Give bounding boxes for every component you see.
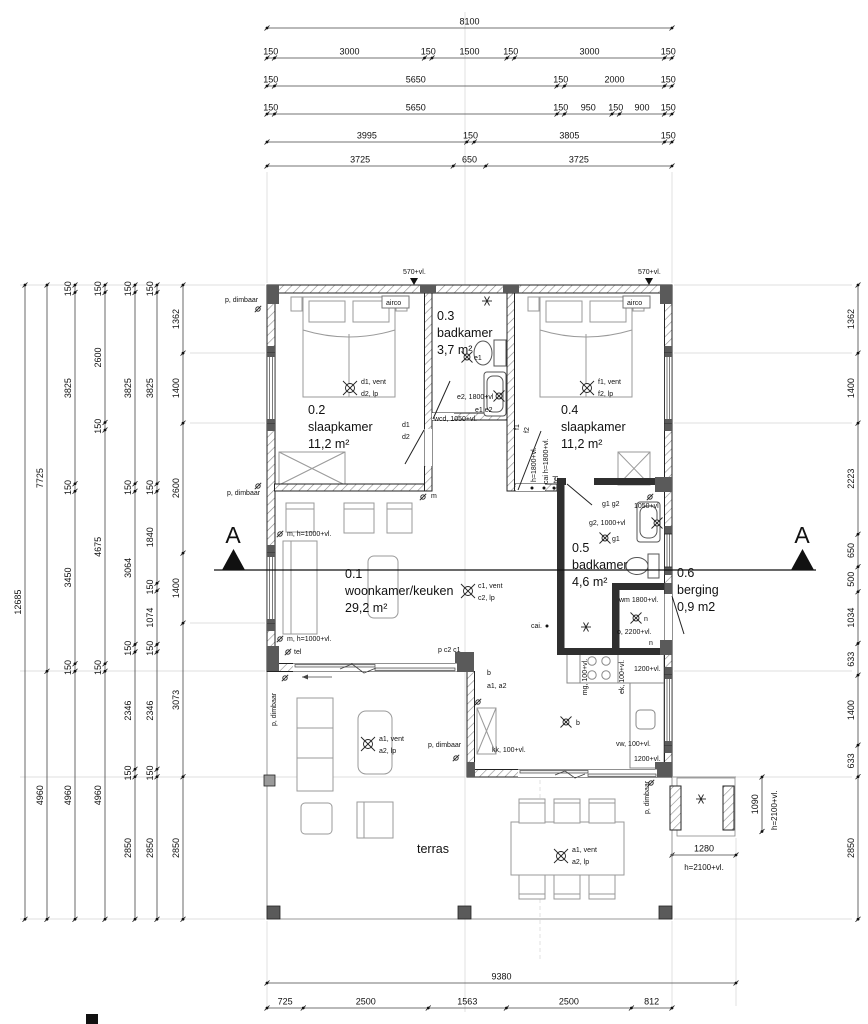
dim-label: 650: [846, 543, 856, 558]
dim-label: 150: [503, 47, 518, 57]
dim-label: 2850: [123, 838, 133, 858]
room-label-0.5: 4,6 m²: [572, 575, 607, 589]
room-label-0.4: 11,2 m²: [561, 437, 602, 451]
annotation-label: 570+vl.: [403, 269, 426, 276]
dot-icon: [543, 487, 546, 490]
dim-label: 2000: [604, 75, 624, 85]
annotation-label: 1200+vl.: [634, 666, 661, 673]
dim-chain-bottom-row-2: 725250015632500812: [265, 997, 675, 1011]
room-label-0.2: slaapkamer: [308, 420, 373, 434]
dim-label: 150: [93, 281, 103, 296]
dim-label: 2850: [846, 838, 856, 858]
dim-label: 4675: [93, 537, 103, 557]
dim-label: 150: [123, 480, 133, 495]
annotation-label: d2, lp: [361, 391, 378, 398]
socket-icon: [285, 649, 291, 655]
dim-chain-top-row-1: 8100: [265, 17, 675, 31]
annotation-label: ek, 100+vl.: [619, 660, 626, 694]
toilet: [626, 554, 659, 578]
annotation-label: g1 g2: [602, 501, 620, 508]
annotation-label: e2, 1800+vl: [457, 394, 494, 401]
annotation-label: m, h=1000+vl.: [287, 636, 331, 643]
dim-label: 150: [93, 660, 103, 675]
annotation-label: wm 1800+vl.: [618, 597, 659, 604]
section-letter: A: [225, 522, 241, 548]
dim-chain-porch-depth: 1090: [750, 775, 765, 835]
annotation-label: e1 e2: [475, 407, 493, 414]
annotation-label: cai h=1800+vl.: [543, 438, 550, 484]
annotation-label: p, dimbaar: [225, 297, 259, 304]
dim-label: 150: [421, 47, 436, 57]
annotation-label: tel: [294, 649, 302, 656]
dim-label: 150: [661, 75, 676, 85]
dim-label: 633: [846, 652, 856, 667]
dim-label: 150: [145, 765, 155, 780]
dim-label: 633: [846, 753, 856, 768]
dim-chain-top-row-4: 1505650150950150900150: [263, 103, 676, 117]
room-label-0.5: badkamer: [572, 558, 628, 572]
dim-label: 900: [634, 103, 649, 113]
dim-label: 3725: [350, 155, 370, 165]
dim-label: 3725: [569, 155, 589, 165]
dim-label: 150: [63, 281, 73, 296]
room-label-0.1: woonkamer/keuken: [344, 584, 453, 598]
annotation-label: airco: [386, 300, 401, 307]
room-label-0.3: 0.3: [437, 309, 454, 323]
floor-plan-drawing: 8100150300015015001503000150150565015020…: [0, 0, 868, 1024]
annotation-label: c1, vent: [478, 583, 503, 590]
dim-chain-left-col-2: 77254960: [35, 283, 50, 922]
side-table: [357, 802, 393, 838]
annotation-label: vw, 100+vl.: [616, 741, 651, 748]
annotation-label: f2: [524, 427, 531, 433]
window: [665, 675, 673, 745]
dim-label: 150: [263, 47, 278, 57]
lamp-icon: [554, 849, 568, 863]
armchair: [344, 503, 374, 533]
socket-icon: [453, 755, 459, 761]
lamp-icon: [461, 584, 475, 598]
sofa: [283, 541, 317, 634]
annotation-label: p, dimbaar: [644, 780, 651, 814]
room-label-0.5: 0.5: [572, 541, 589, 555]
dim-label: 500: [846, 572, 856, 587]
dim-label: 1840: [145, 527, 155, 547]
annotation-label: 1200+vl.: [634, 756, 661, 763]
dot-icon: [553, 487, 556, 490]
dim-label: 650: [462, 155, 477, 165]
annotation-label: a1, vent: [379, 736, 404, 743]
window: [267, 553, 275, 623]
socket-icon: [277, 531, 283, 537]
dim-label: 150: [263, 103, 278, 113]
socket-icon: [255, 306, 261, 312]
annotation-label: tel: [553, 475, 560, 483]
section-arrow: [791, 549, 814, 570]
wardrobe: [279, 452, 345, 485]
dim-label: 1074: [145, 608, 155, 628]
dim-label: 150: [93, 419, 103, 434]
dim-label: 3825: [123, 378, 133, 398]
dot-icon: [546, 625, 549, 628]
annotation-label: h=2100+vl.: [684, 863, 724, 872]
dim-chain-bottom-row-1: 9380: [265, 972, 739, 986]
dim-chain-left-col-1: 12685: [13, 283, 28, 922]
annotation-label: p, dimbaar: [227, 490, 261, 497]
annotation-label: airco: [627, 300, 642, 307]
annotation-label: d1, vent: [361, 379, 386, 386]
star-icon: [482, 297, 492, 306]
socket-icon: [420, 494, 426, 500]
dim-label: 3995: [357, 131, 377, 141]
dim-label: 150: [661, 131, 676, 141]
dim-label: 2600: [93, 347, 103, 367]
dim-label: 1400: [171, 378, 181, 398]
dim-label: 12685: [13, 590, 23, 615]
dim-chain-left-col-7: 136214002600140030732850: [171, 283, 186, 922]
dim-label: 3064: [123, 558, 133, 578]
dim-label: 150: [553, 75, 568, 85]
dim-label: 1563: [457, 997, 477, 1007]
dim-chain-left-col-3: 150382515034501504960: [63, 281, 78, 922]
dim-label: 812: [644, 997, 659, 1007]
dim-chain-right-col-1: 136214002223650500103463314006332850: [846, 283, 861, 922]
dim-label: 7725: [35, 468, 45, 488]
room-label-0.4: slaapkamer: [561, 420, 626, 434]
dim-label: 1090: [750, 794, 760, 814]
annotation-label: f2, lp: [598, 391, 613, 398]
dim-label: 8100: [459, 17, 479, 27]
annotation-label: d1: [402, 422, 410, 429]
dim-label: 150: [463, 131, 478, 141]
dim-label: 2346: [123, 701, 133, 721]
lampS-icon: [631, 613, 642, 624]
socket-icon: [475, 699, 481, 705]
dim-label: 1034: [846, 608, 856, 628]
annotation-label: mg, 100+vl.: [582, 659, 589, 695]
dim-chain-top-row-2: 150300015015001503000150: [263, 47, 676, 61]
dim-label: 2600: [171, 478, 181, 498]
lampS-icon: [600, 533, 611, 544]
dim-chain-left-col-4: 150260015046751504960: [93, 281, 108, 922]
dim-label: 1500: [459, 47, 479, 57]
sill-arrows: [410, 278, 653, 285]
dim-label: 5650: [406, 103, 426, 113]
armchair: [387, 503, 412, 533]
dim-label: 150: [63, 660, 73, 675]
door-opening: [425, 429, 433, 466]
socket-icon: [282, 675, 288, 681]
dim-label: 150: [123, 765, 133, 780]
dim-label: 3450: [63, 567, 73, 587]
dim-label: 150: [661, 47, 676, 57]
room-label-0.6: 0.6: [677, 566, 694, 580]
dim-label: 4960: [93, 785, 103, 805]
annotation-label: e1: [474, 355, 482, 362]
dim-label: 150: [145, 281, 155, 296]
annotation-label: f1: [514, 424, 521, 430]
armchair: [286, 503, 314, 532]
dim-label: 4960: [35, 785, 45, 805]
annotation-label: c2, lp: [478, 595, 495, 602]
room-label-0.1: 29,2 m²: [345, 601, 387, 615]
dim-label: 150: [263, 75, 278, 85]
annotation-label: a1, a2: [487, 683, 507, 690]
lounge-sofa: [297, 698, 333, 791]
porch: [670, 777, 736, 836]
dim-label: 150: [145, 579, 155, 594]
double-bed: [291, 297, 407, 397]
dim-label: 2223: [846, 469, 856, 489]
dim-label: 1400: [171, 578, 181, 598]
lamp-icon: [580, 381, 594, 395]
dim-label: 1362: [846, 309, 856, 329]
room-label-terras: terras: [417, 842, 449, 856]
room-label-0.2: 11,2 m²: [308, 437, 349, 451]
dim-label: 3000: [579, 47, 599, 57]
annotation-label: wcd, 1050+vl.: [433, 416, 477, 423]
dim-label: 2346: [145, 701, 155, 721]
dim-chain-left-col-5: 1503825150306415023461502850: [123, 281, 138, 922]
annotation-label: p c2 c1: [438, 647, 461, 654]
annotation-label: m: [431, 493, 437, 500]
annotation-label: o, 2200+vl.: [617, 629, 651, 636]
window: [665, 353, 673, 423]
door-leaf: [567, 484, 592, 505]
socket-icon: [277, 636, 283, 642]
dim-label: 150: [123, 281, 133, 296]
room-label-0.6: 0,9 m2: [677, 600, 715, 614]
dim-label: 2500: [356, 997, 376, 1007]
annotation-label: p, dimbaar: [428, 742, 462, 749]
dim-label: 3825: [145, 378, 155, 398]
room-label-0.1: 0.1: [345, 567, 362, 581]
annotation-label: cai.: [531, 623, 542, 630]
annotation-label: h=1800+vl.: [531, 447, 538, 482]
dim-label: 2500: [559, 997, 579, 1007]
dim-chain-top-row-3: 15056501502000150: [263, 75, 676, 89]
dim-chain-top-row-5: 39951503805150: [265, 131, 676, 145]
annotation-label: f1, vent: [598, 379, 621, 386]
dim-label: 3825: [63, 378, 73, 398]
sliding-door: [293, 664, 457, 680]
dim-label: 950: [581, 103, 596, 113]
annotation-label: a2, lp: [379, 748, 396, 755]
sliding-door: [518, 770, 657, 779]
window: [267, 353, 275, 423]
double-bed: [528, 297, 644, 397]
dim-label: 1400: [846, 378, 856, 398]
room-label-0.3: badkamer: [437, 326, 493, 340]
socket-icon: [255, 483, 261, 489]
dim-label: 4960: [63, 785, 73, 805]
annotation-label: a2, lp: [572, 859, 589, 866]
dim-label: 3073: [171, 690, 181, 710]
dim-label: 150: [63, 480, 73, 495]
dot-icon: [531, 487, 534, 490]
room-label-0.4: 0.4: [561, 403, 578, 417]
room-label-0.3: 3,7 m²: [437, 343, 472, 357]
annotation-label: b: [487, 670, 491, 677]
dim-chain-porch-width: 1280: [670, 844, 739, 858]
section-arrow: [222, 549, 245, 570]
dim-label: 9380: [491, 972, 511, 982]
furniture-layer: [279, 297, 664, 899]
dim-label: 150: [661, 103, 676, 113]
window: [665, 534, 673, 567]
door-opening: [665, 594, 673, 640]
dim-label: 150: [553, 103, 568, 113]
door-opening: [566, 478, 594, 485]
lampS-icon: [561, 717, 572, 728]
room-label-0.6: berging: [677, 583, 719, 597]
dim-label: 3000: [339, 47, 359, 57]
annotation-label: h=2100+vl.: [770, 790, 779, 830]
dim-label: 5650: [406, 75, 426, 85]
annotation-label: b: [576, 720, 580, 727]
dim-label: 1362: [171, 309, 181, 329]
star-icon: [581, 623, 591, 632]
section-letter: A: [794, 522, 810, 548]
annotation-label: n: [649, 640, 653, 647]
annotation-label: 1050+vl: [634, 503, 659, 510]
annotation-label: d2: [402, 434, 410, 441]
dim-chain-top-row-6: 37256503725: [265, 155, 675, 169]
star-icon: [696, 795, 706, 804]
annotation-label: p, dimbaar: [271, 692, 278, 726]
dim-label: 150: [145, 480, 155, 495]
lamp-icon: [343, 381, 357, 395]
dining-table: [511, 822, 624, 875]
side-table: [301, 803, 332, 834]
annotation-label: g1: [612, 536, 620, 543]
lamp-icon: [361, 737, 375, 751]
dim-label: 150: [123, 641, 133, 656]
sheet-corner-mark: [86, 1014, 98, 1024]
floor-plan-page: 8100150300015015001503000150150565015020…: [0, 0, 868, 1024]
dim-label: 1280: [694, 844, 714, 854]
dim-label: 150: [145, 641, 155, 656]
dimension-layer: 8100150300015015001503000150150565015020…: [13, 17, 861, 1011]
dim-label: 1400: [846, 700, 856, 720]
dim-label: 150: [608, 103, 623, 113]
dim-chain-left-col-6: 15038251501840150107415023461502850: [145, 281, 160, 922]
room-label-0.2: 0.2: [308, 403, 325, 417]
toilet: [474, 340, 506, 366]
socket-icon: [647, 494, 653, 500]
dim-label: 2850: [171, 838, 181, 858]
dim-label: 2850: [145, 838, 155, 858]
annotation-label: g2, 1000+vl: [589, 520, 626, 527]
annotation-label: n: [644, 616, 648, 623]
dim-label: 3805: [559, 131, 579, 141]
annotation-label: m, h=1000+vl.: [287, 531, 331, 538]
annotation-label: a1, vent: [572, 847, 597, 854]
grid-lines: [20, 12, 852, 1012]
dim-label: 725: [278, 997, 293, 1007]
annotation-label: 570+vl.: [638, 269, 661, 276]
annotation-label: kk, 100+vl.: [492, 747, 526, 754]
